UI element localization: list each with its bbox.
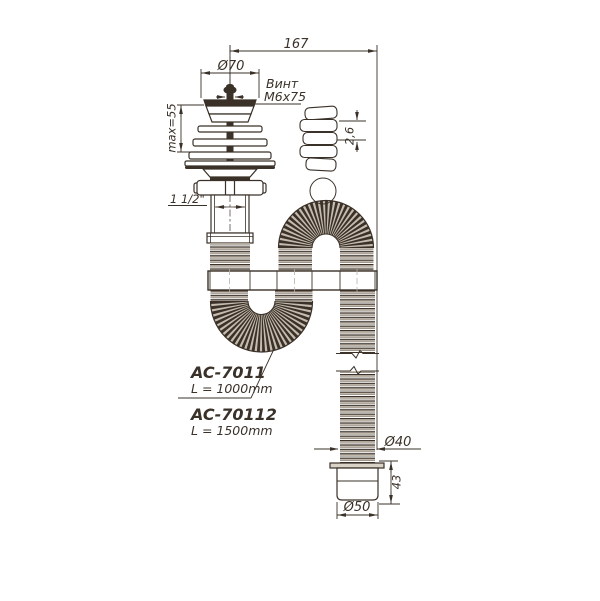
washer-plate (189, 152, 271, 159)
washer-plate (193, 139, 267, 146)
corrugation-detail-view (300, 106, 337, 204)
product-model-1: AC-7011 (189, 363, 266, 382)
flange (185, 161, 275, 166)
product-model-2: AC-70112 (189, 405, 277, 424)
cone-body (203, 169, 257, 177)
hose-section (340, 290, 375, 353)
hose-section (340, 248, 374, 271)
outlet-flange (330, 463, 384, 468)
hose-u-bend (211, 301, 313, 352)
coupling-ring (207, 233, 253, 243)
outlet-height-label: 43 (390, 475, 404, 490)
outlet-body (337, 468, 378, 500)
drain-cap (204, 100, 256, 106)
hose-section (279, 248, 313, 271)
product-length-2: L = 1500mm (191, 423, 273, 438)
hose-section (210, 243, 250, 271)
washer-plate (198, 126, 262, 132)
cap-diameter-label: Ø70 (217, 59, 245, 74)
technical-drawing-page: 167 Ø70 Винт М6х75 max=55 1 1/2" 2,6 AC-… (0, 0, 600, 601)
overall-length-label: 167 (284, 37, 310, 52)
drain-pipe-drawing: 167 Ø70 Винт М6х75 max=55 1 1/2" 2,6 AC-… (0, 0, 600, 601)
sleeve-band (208, 269, 377, 292)
outlet-diameter-label: Ø50 (343, 500, 371, 515)
corrugation-pitch-label: 2,6 (343, 127, 357, 145)
outlet-fitting (330, 463, 384, 500)
hose-section (275, 290, 313, 301)
hose-n-bend (279, 201, 374, 249)
max-mount-label: max=55 (165, 103, 179, 152)
pipe-break (336, 351, 379, 375)
screw-label-line2: М6х75 (264, 89, 306, 104)
hex-nut (194, 181, 266, 196)
hose-section (340, 371, 375, 463)
product-length-1: L = 1000mm (191, 381, 273, 396)
thread-label: 1 1/2" (170, 192, 205, 206)
hose-diameter-label: Ø40 (384, 435, 412, 450)
